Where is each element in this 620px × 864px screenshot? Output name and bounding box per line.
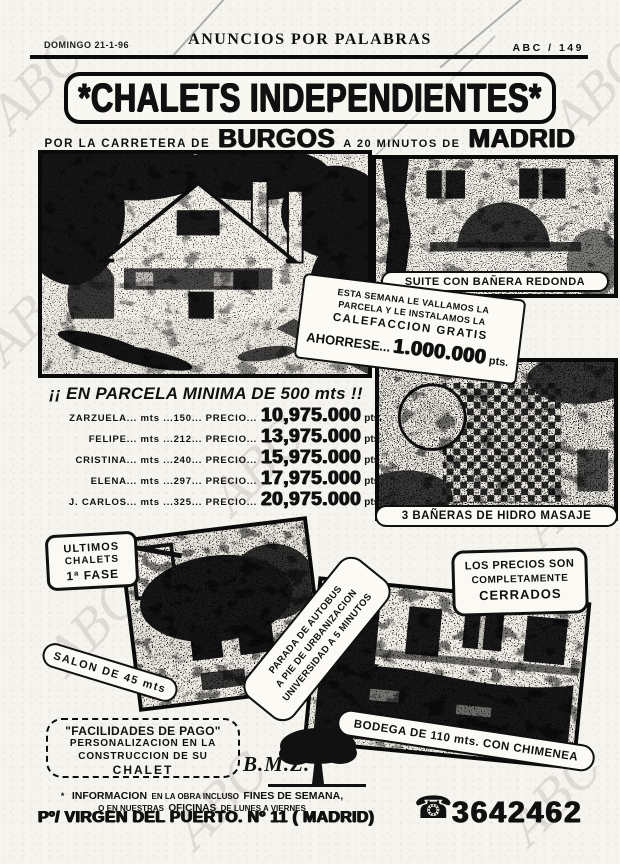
subtitle-lead: POR LA CARRETERA DE [44, 138, 210, 150]
ultimos-chalets-bubble: ULTIMOS CHALETS 1ª FASE [45, 531, 140, 592]
facilidades-line-4: CHALET [48, 763, 238, 778]
savings-unit: pts. [488, 355, 509, 369]
model-lead: FELIPE... mts ...212... PRECIO... [89, 434, 257, 445]
price-row-zarzuela: ZARZUELA... mts ...150... PRECIO... 10,9… [30, 405, 382, 425]
model-lead: CRISTINA... mts ...240... PRECIO... [76, 455, 258, 466]
price-unit: pts. [364, 455, 382, 466]
price-row-elena: ELENA... mts ...297... PRECIO... 17,975.… [30, 468, 382, 488]
ad-subtitle: POR LA CARRETERA DE BURGOS A 20 MINUTOS … [58, 123, 562, 153]
header-rule [30, 55, 588, 59]
street-address: Pº/ VIRGEN DEL PUERTO. Nº 11 ( MADRID) [38, 809, 374, 827]
parcel-headline: ¡¡ EN PARCELA MINIMA DE 500 mts !! [36, 384, 376, 404]
model-price: 15,975.000 [261, 447, 361, 469]
page-reference: ABC / 149 [512, 42, 584, 54]
price-row-jcarlos: J. CARLOS... mts ...325... PRECIO... 20,… [30, 489, 382, 509]
phone-number: 3642462 [452, 796, 583, 830]
ad-title-banner: *CHALETS INDEPENDIENTES* [64, 72, 556, 124]
price-unit: pts. [364, 434, 382, 445]
subtitle-mid: A 20 MINUTOS DE [343, 138, 460, 150]
model-price: 10,975.000 [261, 405, 361, 427]
photo-suite: SUITE CON BAÑERA REDONDA [372, 155, 618, 298]
facilidades-line-1: "FACILIDADES DE PAGO" [48, 724, 238, 738]
bathroom-caption-pill: 3 BAÑERAS DE HIDRO MASAJE [375, 505, 618, 527]
price-row-felipe: FELIPE... mts ...212... PRECIO... 13,975… [30, 426, 382, 446]
price-unit: pts. [364, 413, 382, 424]
ad-title: *CHALETS INDEPENDIENTES* [78, 75, 541, 122]
facilidades-line-3: CONSTRUCCION DE SU [48, 751, 238, 764]
bathroom-caption: 3 BAÑERAS DE HIDRO MASAJE [402, 510, 592, 522]
savings-label: AHORRESE... [306, 330, 392, 355]
facilidades-line-2: PERSONALIZACION EN LA [48, 738, 238, 751]
model-price: 17,975.000 [261, 468, 361, 490]
telephone-icon: ☎ [414, 792, 453, 823]
newspaper-page: ABC ABC ABC ABC ABC ABC ABC ABC ABC DOMI… [0, 0, 620, 864]
model-lead: ZARZUELA... mts ...150... PRECIO... [69, 413, 257, 424]
facilidades-box: "FACILIDADES DE PAGO" PERSONALIZACION EN… [46, 718, 240, 778]
subtitle-city-madrid: MADRID [469, 123, 576, 154]
price-list: ZARZUELA... mts ...150... PRECIO... 10,9… [30, 405, 382, 510]
model-lead: ELENA... mts ...297... PRECIO... [91, 476, 258, 487]
ultimos-line-3: 1ª FASE [49, 566, 136, 586]
model-price: 13,975.000 [261, 426, 361, 448]
model-lead: J. CARLOS... mts ...325... PRECIO... [69, 497, 257, 508]
precios-cerrados-bubble: LOS PRECIOS SON COMPLETAMENTE CERRADOS [451, 547, 589, 617]
bathroom-photo-illustration [379, 362, 614, 517]
price-row-cristina: CRISTINA... mts ...240... PRECIO... 15,9… [30, 447, 382, 467]
suite-caption: SUITE CON BAÑERA REDONDA [405, 276, 585, 288]
price-unit: pts. [364, 476, 382, 487]
price-unit: pts. [364, 497, 382, 508]
model-price: 20,975.000 [261, 489, 361, 511]
precios-line-3: CERRADOS [455, 585, 585, 607]
